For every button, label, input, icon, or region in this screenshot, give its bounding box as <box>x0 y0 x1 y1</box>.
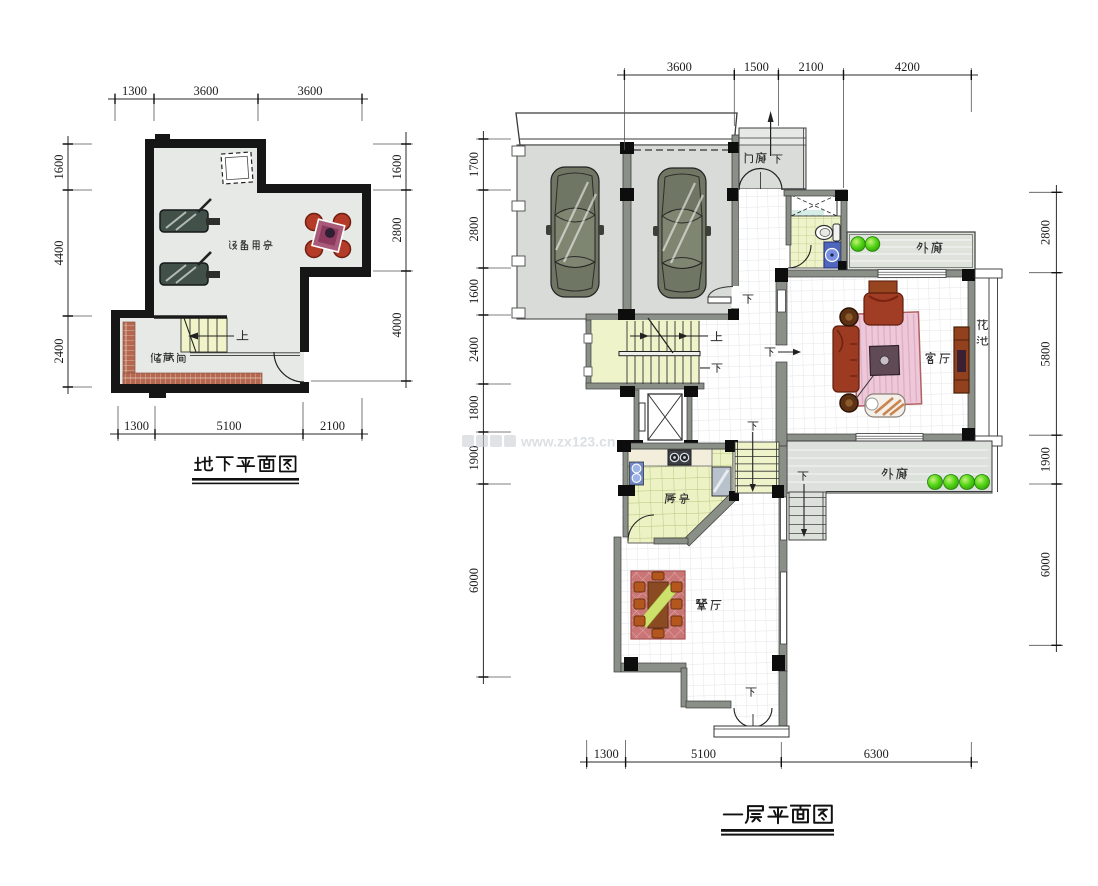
svg-text:1600: 1600 <box>467 279 481 304</box>
svg-text:1300: 1300 <box>122 84 147 98</box>
svg-text:4200: 4200 <box>895 60 920 74</box>
svg-text:1600: 1600 <box>52 155 66 180</box>
svg-text:6000: 6000 <box>1039 552 1053 577</box>
svg-text:1700: 1700 <box>467 152 481 177</box>
svg-text:6000: 6000 <box>467 568 481 593</box>
svg-text:4400: 4400 <box>52 241 66 266</box>
svg-text:4000: 4000 <box>390 313 404 338</box>
svg-text:2800: 2800 <box>1039 220 1053 245</box>
svg-text:5100: 5100 <box>691 747 716 761</box>
svg-text:2800: 2800 <box>390 218 404 243</box>
svg-text:3600: 3600 <box>194 84 219 98</box>
svg-text:2100: 2100 <box>799 60 824 74</box>
svg-text:3600: 3600 <box>298 84 323 98</box>
svg-text:1900: 1900 <box>1039 447 1053 472</box>
svg-text:1600: 1600 <box>390 155 404 180</box>
svg-text:6300: 6300 <box>864 747 889 761</box>
svg-text:www.zx123.cn: www.zx123.cn <box>520 434 615 450</box>
svg-text:1800: 1800 <box>467 396 481 421</box>
svg-text:2400: 2400 <box>467 337 481 362</box>
svg-text:2100: 2100 <box>320 419 345 433</box>
svg-text:5800: 5800 <box>1039 342 1053 367</box>
svg-text:1300: 1300 <box>124 419 149 433</box>
svg-text:1300: 1300 <box>594 747 619 761</box>
svg-text:2400: 2400 <box>52 339 66 364</box>
svg-text:5100: 5100 <box>217 419 242 433</box>
svg-text:3600: 3600 <box>667 60 692 74</box>
svg-text:2800: 2800 <box>467 217 481 242</box>
svg-text:1900: 1900 <box>467 446 481 471</box>
svg-text:1500: 1500 <box>744 60 769 74</box>
